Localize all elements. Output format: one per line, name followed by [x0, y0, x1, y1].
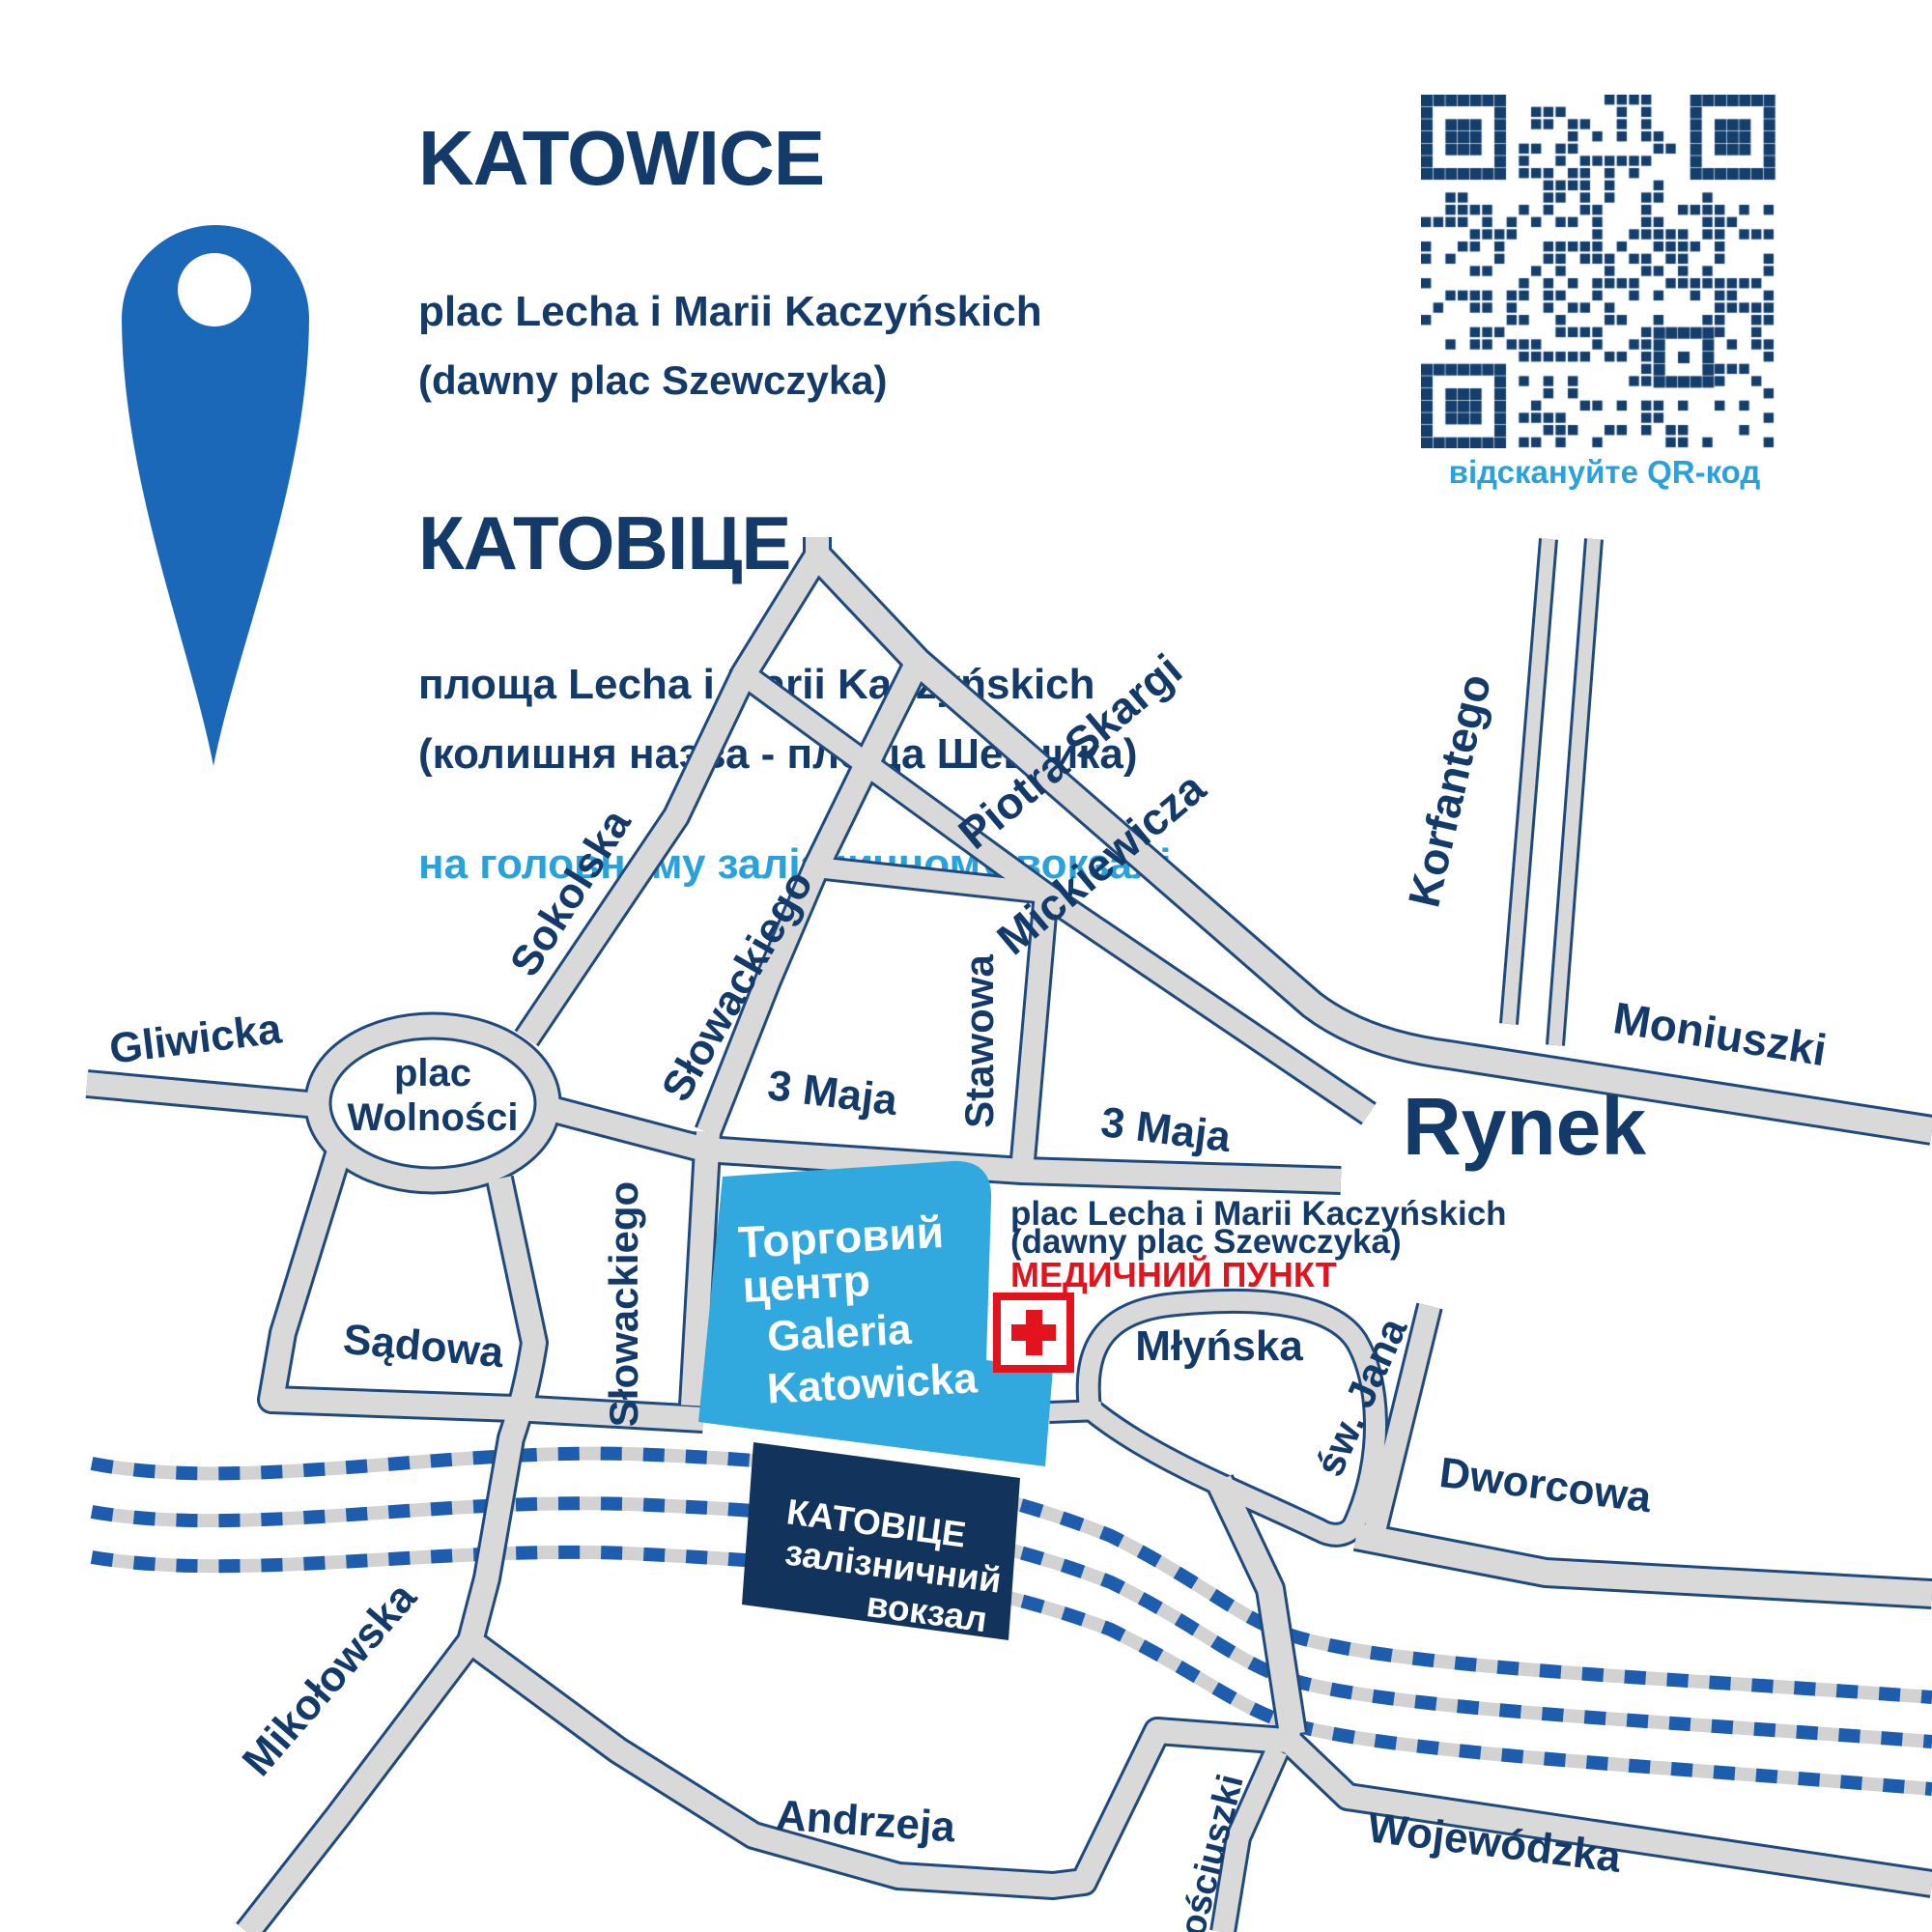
street-label-maja-east: 3 Maja [1098, 1098, 1234, 1161]
street-label-gliwicka: Gliwicka [107, 1005, 285, 1072]
street-label-dworcowa: Dworcowa [1437, 1449, 1655, 1522]
street-label-slowackiego-south: Słowackiego [601, 1181, 646, 1427]
road-andrzeja-fill [470, 1641, 1299, 1886]
street-label-rynek: Rynek [1403, 1081, 1646, 1172]
street-label-stawowa: Stawowa [956, 954, 1002, 1128]
label-mall-line3: Galeria [766, 1306, 913, 1361]
street-label-sadowa: Sądowa [341, 1316, 505, 1377]
city-map: SokolskaSłowackiegoPiotra SkargiMickiewi… [0, 0, 1932, 1932]
road-gliwicka-fill [87, 1084, 319, 1105]
street-label-maja-west: 3 Maja [765, 1062, 900, 1124]
street-label-mlynska: Młyńska [1135, 1322, 1303, 1370]
street-label-korfantego: Korfantego [1398, 669, 1500, 912]
road-loop-connector-fill [1049, 1410, 1101, 1412]
poster-katowice-map: { "header": { "city_pl": "KATOWICE", "pl… [0, 0, 1932, 1932]
label-plac-wolnosci-line2: Wolności [347, 1096, 518, 1139]
label-medical-point: МЕДИЧНИЙ ПУНКТ [1010, 1254, 1337, 1294]
medical-cross-icon [997, 1296, 1070, 1369]
label-mall-line2: центр [741, 1255, 871, 1312]
road-andrzeja [470, 1641, 1299, 1886]
road-korfantego-west-fill [1509, 539, 1548, 1024]
street-label-moniuszki: Moniuszki [1610, 992, 1831, 1075]
road-mikolowska-fill [247, 1641, 470, 1932]
label-plac-wolnosci-line1: plac [394, 1052, 471, 1094]
road-korfantego-east-fill [1555, 539, 1594, 1045]
